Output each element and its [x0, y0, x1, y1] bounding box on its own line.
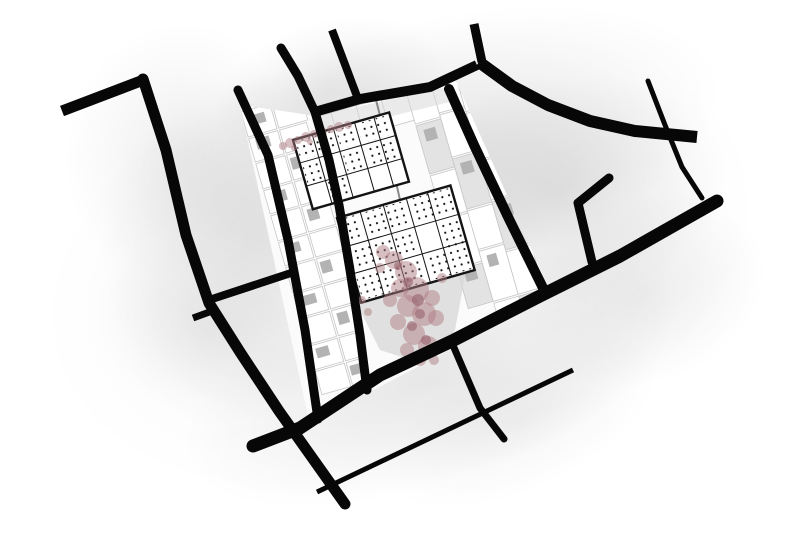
- tree-blob: [307, 139, 313, 145]
- tree-blob: [390, 314, 406, 330]
- tree-blob: [344, 121, 352, 129]
- tree-blob: [437, 273, 447, 283]
- site-plan-canvas: [0, 0, 800, 544]
- tree-blob: [421, 335, 431, 345]
- tree-blob: [412, 294, 424, 306]
- tree-blob: [415, 309, 425, 319]
- site-plan-svg: [0, 0, 800, 544]
- tree-blob: [394, 262, 402, 270]
- tree-blob: [428, 310, 444, 326]
- tree-blob: [327, 125, 335, 133]
- tree-blob: [424, 290, 440, 306]
- tree-blob: [294, 136, 302, 144]
- tree-blob: [407, 321, 417, 331]
- tree-blob: [375, 263, 385, 273]
- tree-blob: [364, 308, 372, 316]
- tree-blob: [291, 145, 297, 151]
- tree-blob: [334, 122, 344, 132]
- tree-blob: [383, 293, 397, 307]
- tree-blob: [403, 277, 413, 287]
